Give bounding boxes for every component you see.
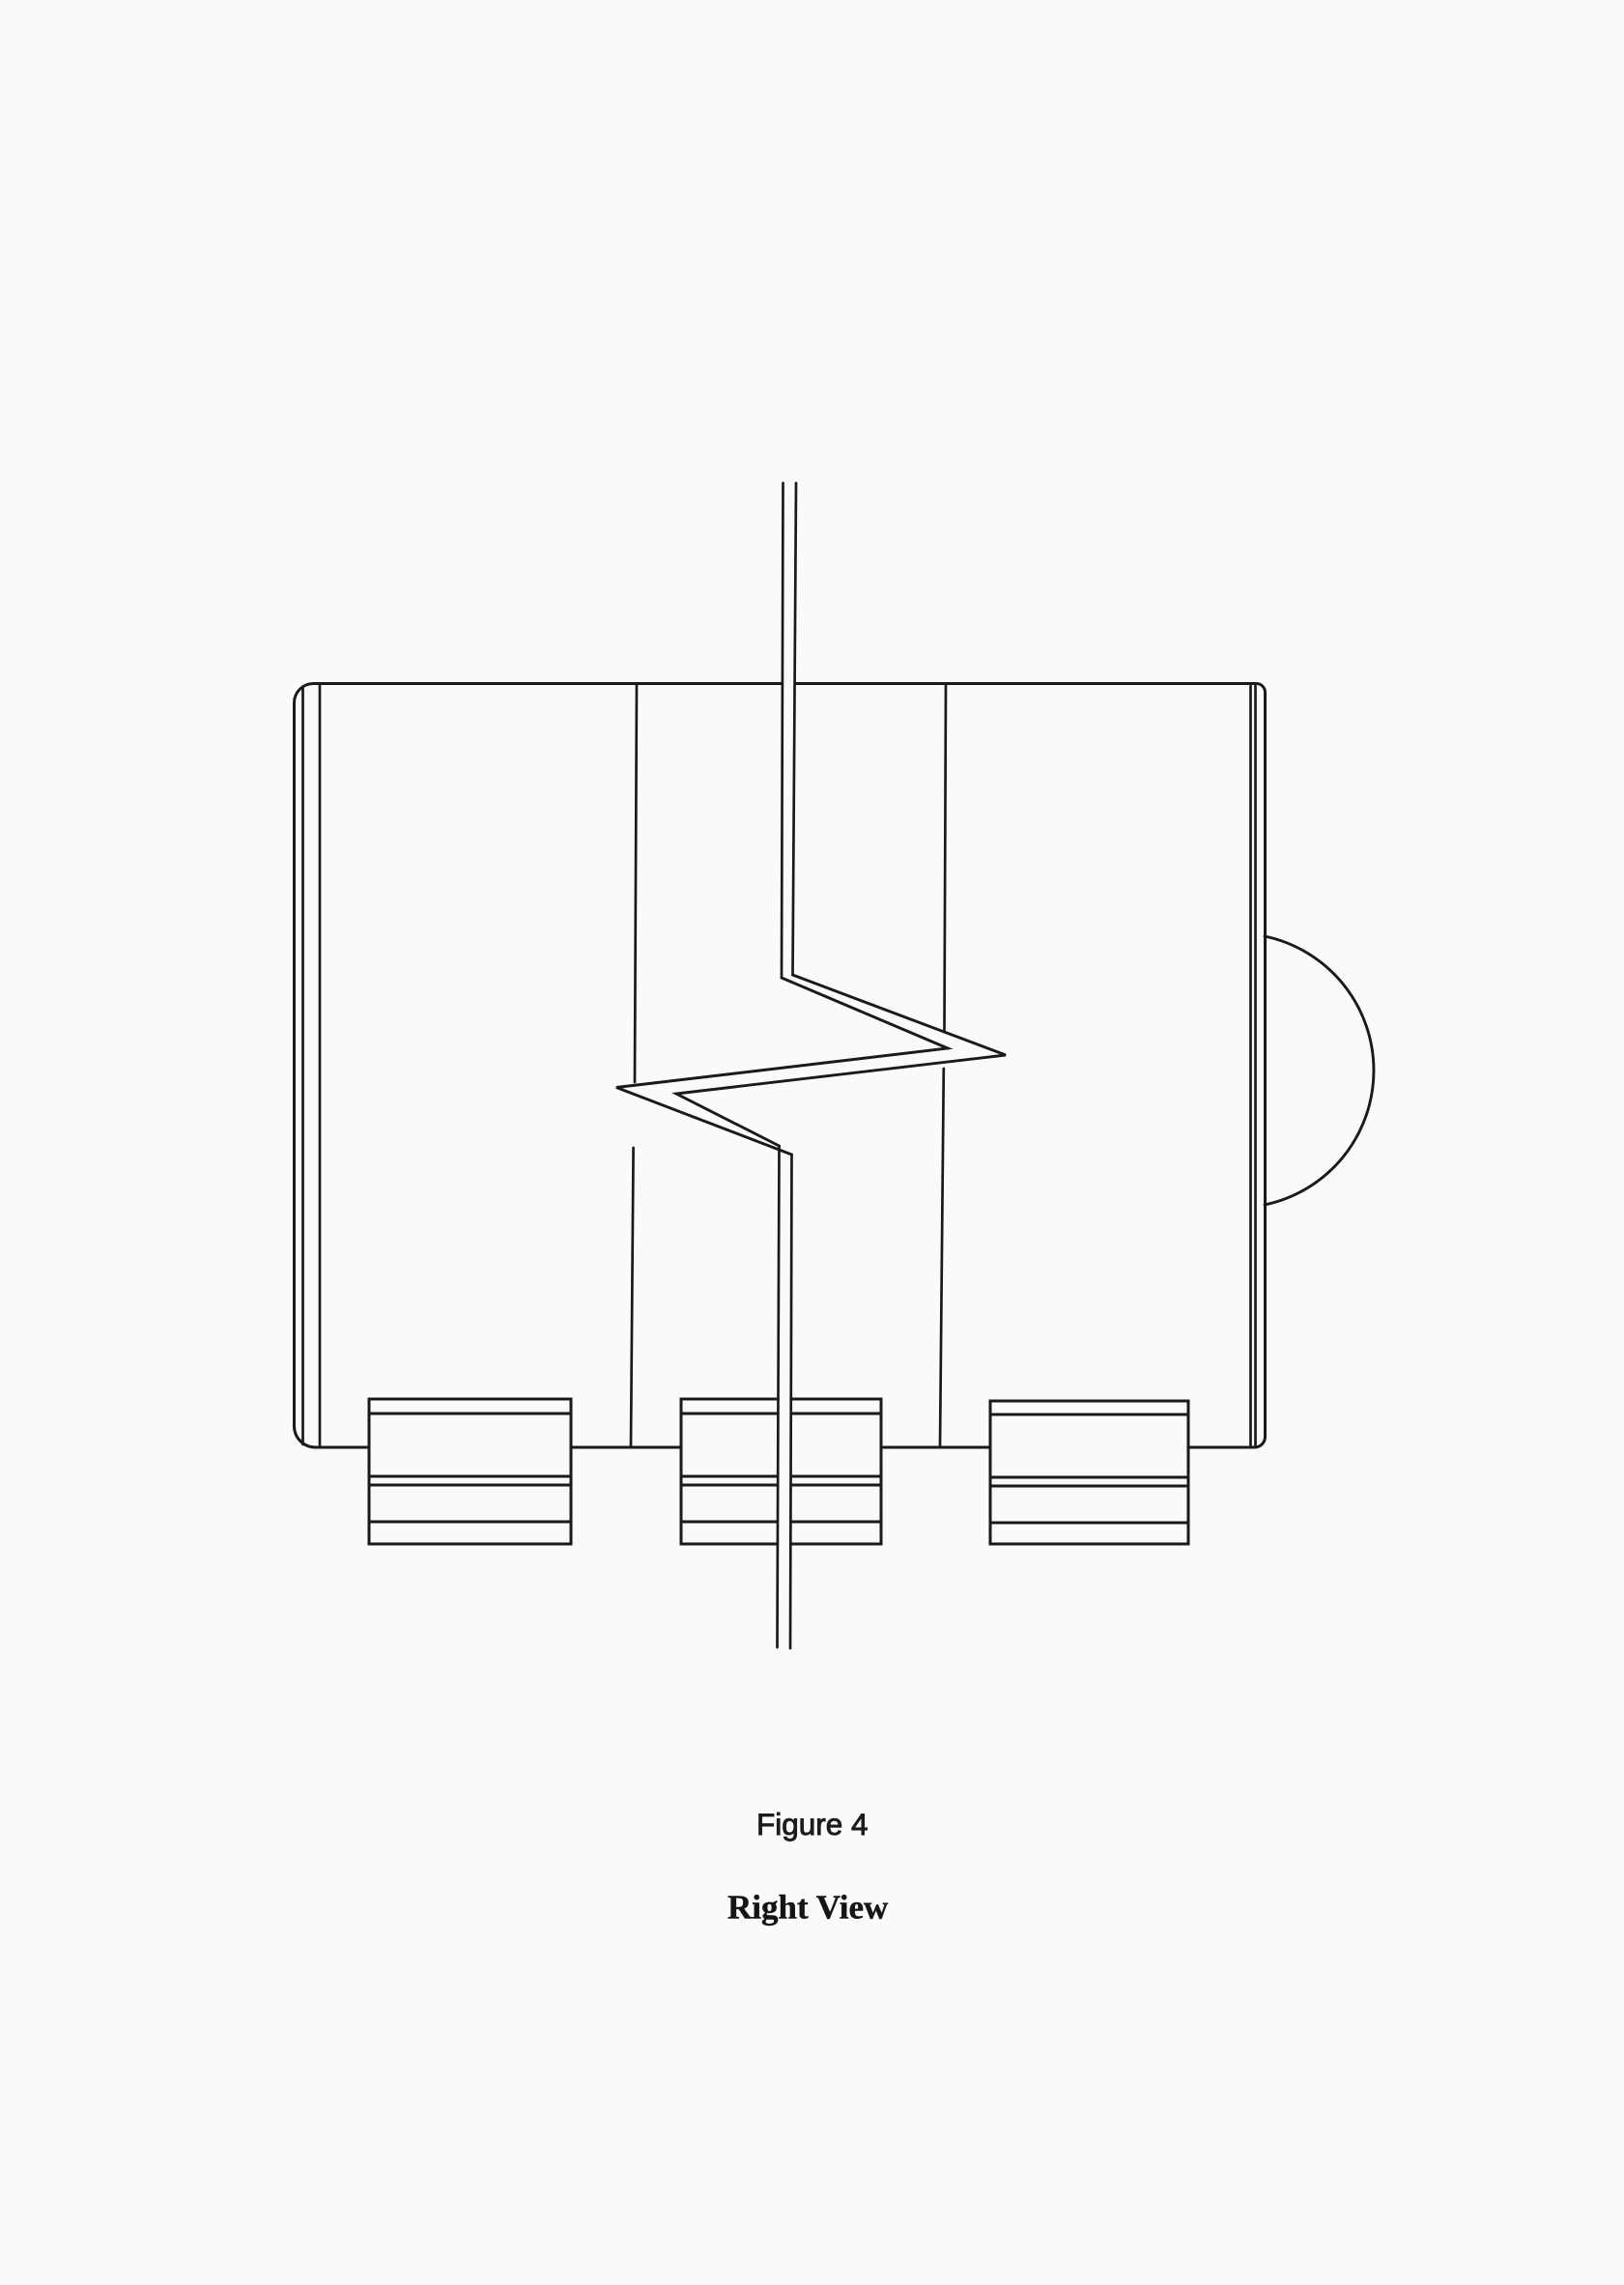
svg-text:Figure 4: Figure 4	[756, 1807, 869, 1842]
svg-text:Right View: Right View	[727, 1889, 889, 1927]
